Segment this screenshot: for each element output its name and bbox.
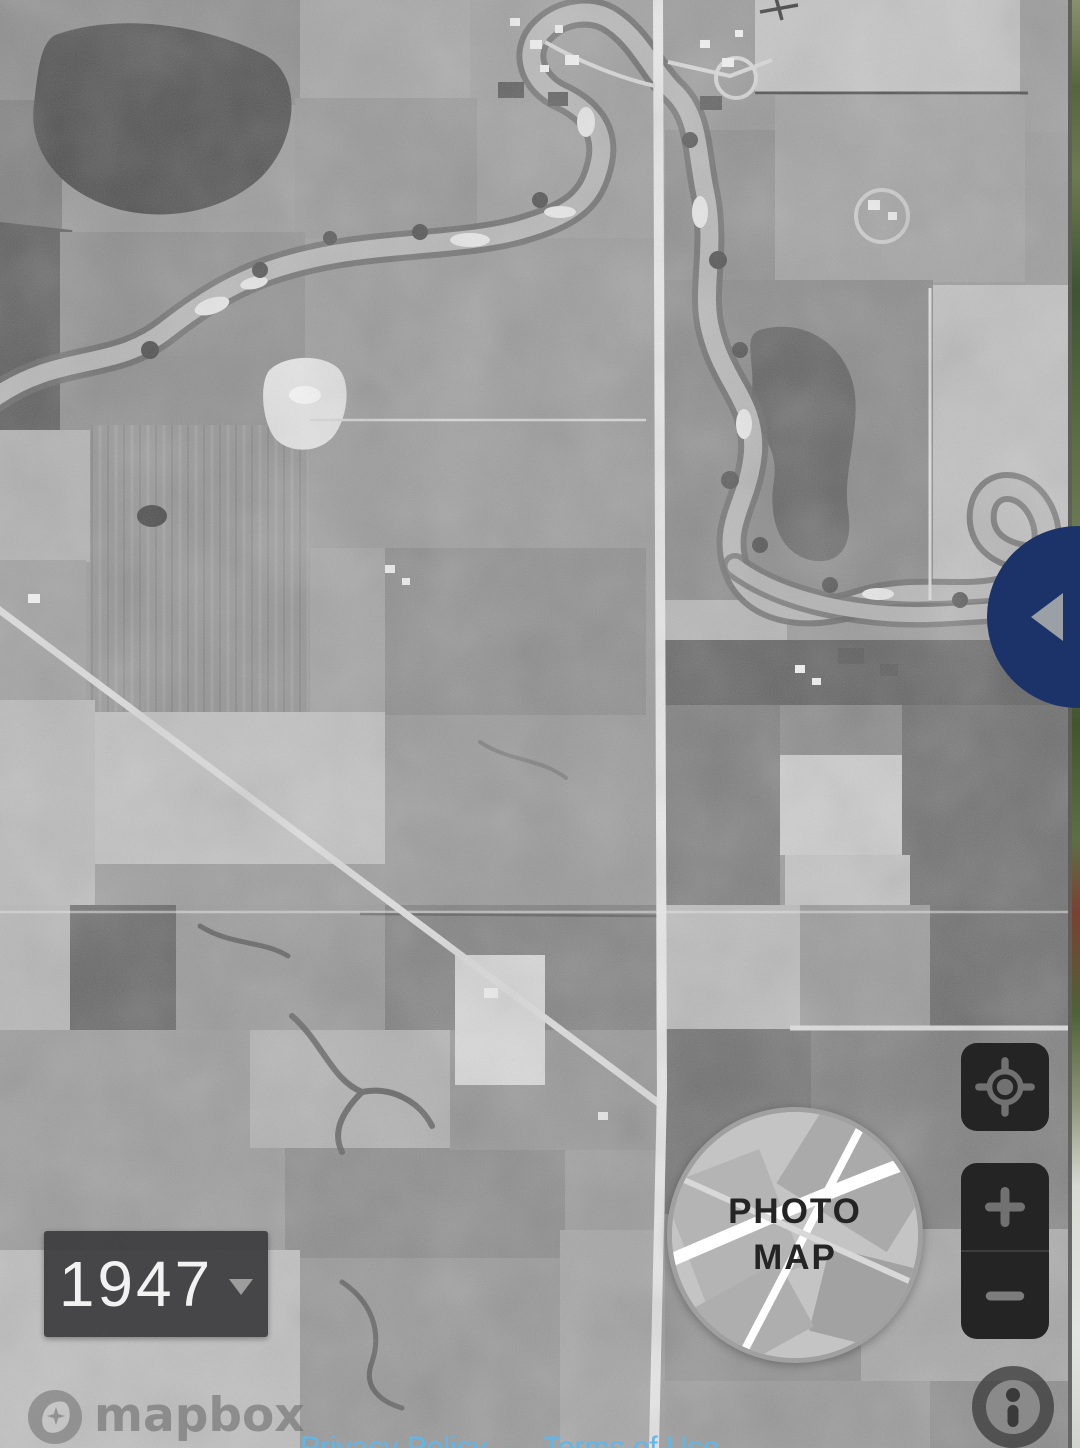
layer-toggle-line2: MAP (753, 1238, 837, 1278)
modern-map-sliver (1068, 0, 1080, 1448)
triangle-left-icon (1031, 593, 1063, 641)
map-viewport: PHOTO MAP 1947 mapbox Privacy Policy Ter… (0, 0, 1080, 1448)
mapbox-logo[interactable]: mapbox (26, 1388, 305, 1446)
year-selector[interactable]: 1947 (44, 1231, 268, 1337)
layer-toggle-label: PHOTO MAP (672, 1112, 918, 1358)
zoom-out-button[interactable] (961, 1252, 1049, 1339)
mapbox-pin-icon (26, 1388, 84, 1446)
info-icon (984, 1378, 1042, 1436)
footer-links: Privacy Policy Terms of Use (300, 1431, 719, 1448)
layer-toggle-line1: PHOTO (728, 1192, 862, 1232)
terms-of-use-link[interactable]: Terms of Use (543, 1431, 720, 1448)
mapbox-wordmark: mapbox (94, 1392, 305, 1443)
zoom-in-button[interactable] (961, 1163, 1049, 1250)
locate-button[interactable] (961, 1043, 1049, 1131)
privacy-policy-link[interactable]: Privacy Policy (300, 1431, 487, 1448)
locate-target-icon (969, 1051, 1041, 1123)
minus-icon (969, 1260, 1041, 1332)
year-value: 1947 (59, 1252, 213, 1316)
dropdown-caret-icon (229, 1279, 253, 1295)
layer-toggle-button[interactable]: PHOTO MAP (667, 1107, 923, 1363)
plus-icon (969, 1171, 1041, 1243)
attribution-info-button[interactable] (972, 1366, 1054, 1448)
zoom-controls (961, 1163, 1049, 1339)
